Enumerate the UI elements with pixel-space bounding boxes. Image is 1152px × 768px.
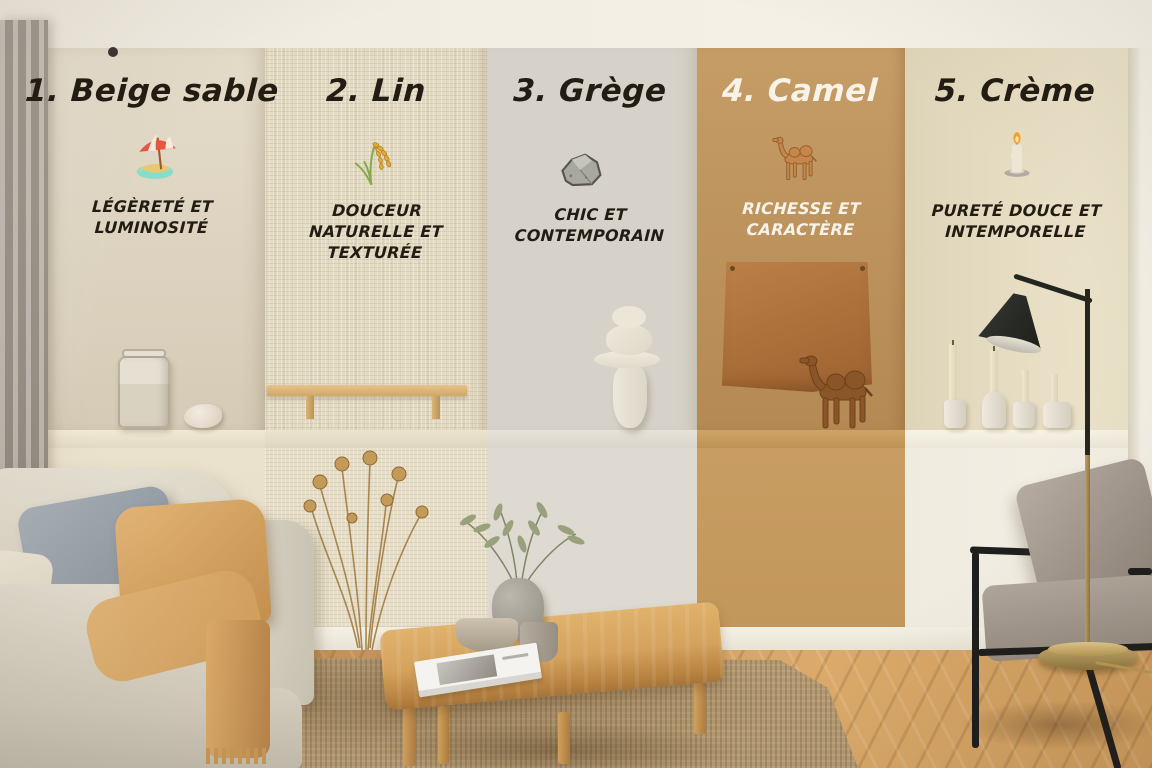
sand-jar (118, 356, 170, 428)
vase-candle-holder (982, 392, 1006, 428)
candle-wick (952, 340, 954, 345)
wooden-camel-figurine (792, 352, 888, 432)
panel-title-grege: 3. Grège (479, 68, 701, 114)
panel-title-lin: 2. Lin (265, 68, 487, 114)
candle-holder (1013, 402, 1035, 428)
panel-desc-beige-sable: LÉGÈRETÉ ET LUMINOSITÉ (51, 196, 253, 238)
floor-lamp-pole-brass (1085, 455, 1090, 655)
floor-lamp-pole (1085, 289, 1090, 459)
magazine-cover-photo (436, 654, 497, 685)
magazine-cover-text (502, 653, 528, 660)
taper-candle (990, 350, 998, 398)
floor-lamp-base-top (1048, 642, 1128, 656)
panel-title-beige-sable: 1. Beige sable (41, 68, 263, 114)
curtain-rod-finial (108, 47, 118, 57)
camel-throw-blanket-drape (206, 620, 270, 758)
leather-nail (730, 266, 735, 271)
rice-sheaf-icon (346, 134, 404, 192)
mug-candle-holder (1043, 402, 1071, 428)
rock-icon (552, 140, 610, 198)
camel-throw-blanket-fringe (206, 748, 270, 764)
candle-wick (993, 346, 995, 351)
ledge (905, 430, 1128, 448)
taper-candle (949, 344, 957, 402)
leather-nail (860, 266, 865, 271)
lower-wall (697, 448, 905, 627)
armchair-shadow (960, 700, 1152, 750)
panel-desc-lin: DOUCEUR NATURELLE ET TEXTURÉE (279, 200, 472, 263)
taper-candle (1022, 370, 1029, 404)
stone-sculpture-middle-stone (606, 325, 652, 355)
camel-icon (768, 130, 826, 188)
panel-desc-creme: PURETÉ DOUCE ET INTEMPORELLE (909, 200, 1123, 242)
stone-sculpture-pedestal (613, 366, 647, 428)
panel-title-camel: 4. Camel (689, 68, 911, 114)
shelf-bracket (432, 396, 440, 419)
table-leg (403, 700, 416, 766)
ledge (487, 430, 697, 448)
beach-umbrella-icon (126, 128, 184, 186)
ceiling (0, 0, 1152, 50)
shelf-bracket (306, 396, 314, 419)
ledge (697, 430, 905, 448)
sand-jar-lid (122, 349, 166, 358)
panel-desc-grege: CHIC ET CONTEMPORAIN (504, 204, 676, 246)
table-leg (438, 706, 449, 764)
candle-icon (988, 128, 1046, 186)
candle-holder (944, 400, 966, 428)
living-room-scene: 1. Beige sable LÉGÈRETÉ ET LUMINOSITÉ 2.… (0, 0, 1152, 768)
wooden-wall-shelf (267, 385, 467, 396)
stone-sculpture-top-stone (612, 306, 646, 328)
taper-candle (1051, 374, 1058, 404)
seashell (184, 404, 222, 428)
armchair-right-armrest (1128, 568, 1152, 575)
panel-desc-camel: RICHESSE ET CARACTÈRE (712, 198, 890, 240)
panel-title-creme: 5. Crème (904, 68, 1126, 114)
table-leg (558, 712, 570, 764)
